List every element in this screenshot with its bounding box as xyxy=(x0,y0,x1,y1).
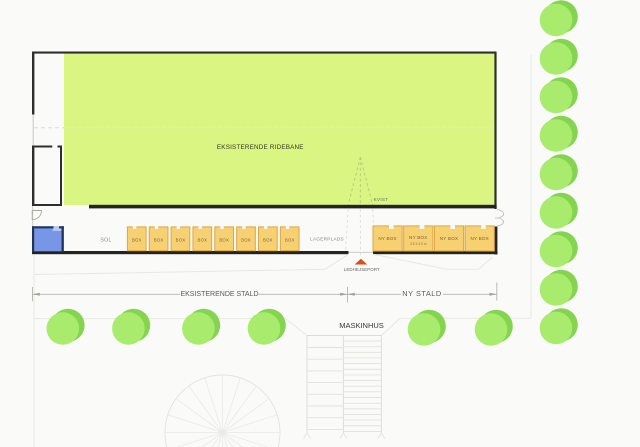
svg-text:NY BOX: NY BOX xyxy=(409,235,427,240)
svg-text:KVIST: KVIST xyxy=(374,197,389,202)
svg-text:EKSISTERENDE STALD: EKSISTERENDE STALD xyxy=(180,291,258,298)
svg-text:BOX: BOX xyxy=(219,237,229,242)
svg-text:NY BOX: NY BOX xyxy=(440,236,458,241)
svg-text:SOL: SOL xyxy=(100,237,111,243)
svg-text:BOX: BOX xyxy=(176,237,186,242)
svg-text:NY BOX: NY BOX xyxy=(470,236,488,241)
svg-text:LEDHEJSEPORT: LEDHEJSEPORT xyxy=(344,267,380,272)
svg-text:BOX: BOX xyxy=(132,237,142,242)
svg-text:LAGERPLADS: LAGERPLADS xyxy=(310,236,344,241)
svg-text:MASKINHUS: MASKINHUS xyxy=(339,321,384,330)
svg-text:BOX: BOX xyxy=(198,237,208,242)
svg-text:3.5 X 4.0 m: 3.5 X 4.0 m xyxy=(410,242,427,246)
svg-text:BOX: BOX xyxy=(285,237,295,242)
svg-text:BOX: BOX xyxy=(241,237,251,242)
svg-text:BOX: BOX xyxy=(263,237,273,242)
svg-text:NY STALD: NY STALD xyxy=(402,289,441,298)
svg-text:NY BOX: NY BOX xyxy=(378,236,396,241)
svg-text:BOX: BOX xyxy=(154,237,164,242)
svg-text:EKSISTERENDE RIDEBANE: EKSISTERENDE RIDEBANE xyxy=(217,144,304,151)
